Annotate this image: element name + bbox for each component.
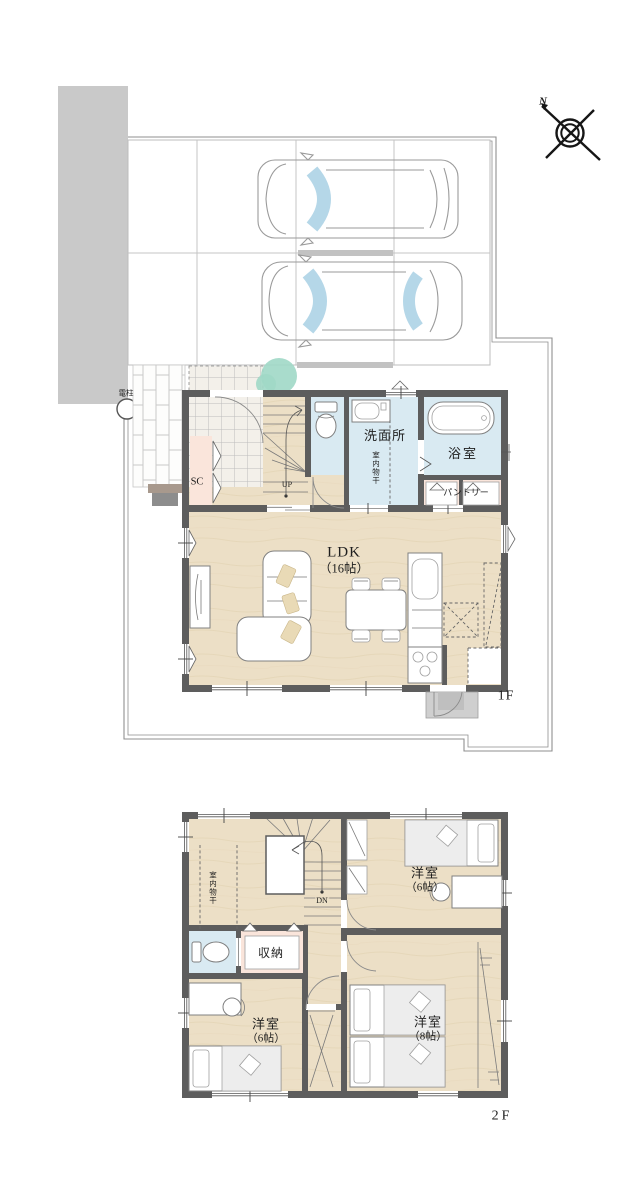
house-2f: [178, 808, 512, 1102]
room-label-ne: 洋室 （6帖）: [406, 866, 445, 895]
door-sw: [306, 1004, 336, 1010]
room-label-ldk: LDK （16帖）: [319, 544, 369, 577]
floorplan-drawing: [0, 0, 640, 1200]
wheel-stopper: [298, 250, 393, 256]
house-1f: [133, 358, 515, 718]
sofa-chaise: [237, 617, 311, 661]
door-ne: [341, 900, 347, 928]
sofa: [263, 551, 311, 625]
road-block: [58, 86, 128, 404]
toilet2-tank: [192, 942, 201, 962]
entrance-opening: [210, 390, 263, 397]
compass: [541, 103, 600, 160]
toilet-tank: [315, 402, 337, 412]
shoe-closet-floor: [190, 436, 212, 506]
drying-label-2f: 室内物干: [209, 871, 218, 905]
utility-pole-label: 電柱: [119, 389, 134, 398]
compass-north-label: N: [539, 95, 547, 108]
room-label-sw: 洋室 （6帖）: [247, 1017, 286, 1046]
room-ne-size: （6帖）: [406, 881, 445, 894]
room-label-storage: 収納: [258, 946, 284, 960]
hall-ldk-opening: [267, 505, 310, 512]
closet-ne: [347, 820, 367, 894]
dining-table: [346, 590, 406, 630]
bed-ne: [405, 820, 498, 866]
back-door-opening: [430, 685, 466, 692]
bed-sw: [189, 1046, 281, 1091]
toilet2-bowl: [203, 942, 229, 962]
room-label-se: 洋室 （8帖）: [409, 1015, 448, 1044]
ldk-window-right: [501, 525, 508, 553]
chair-sw: [223, 998, 241, 1016]
back-porch: [426, 692, 478, 718]
room-label-shoe-closet: SC: [191, 477, 204, 490]
room-sw-size: （6帖）: [247, 1032, 286, 1045]
drying-label-1f: 室内物干: [372, 451, 381, 485]
wheel-stopper: [297, 362, 393, 368]
desk-ne: [452, 876, 502, 908]
kitchen-sink: [412, 559, 438, 599]
ldk-size: （16帖）: [319, 562, 369, 577]
room-ne-name: 洋室: [406, 866, 445, 882]
room-se-size: （8帖）: [409, 1030, 448, 1043]
room-label-bathroom: 浴室: [448, 446, 478, 462]
bed-se-2: [350, 1037, 445, 1087]
door-se: [341, 941, 347, 972]
room-label-washroom: 洗面所: [364, 428, 406, 444]
ldk-name: LDK: [319, 544, 369, 562]
approach-path: [133, 365, 185, 487]
stair-void: [266, 836, 304, 894]
stove: [408, 647, 442, 683]
entrance-step: [152, 493, 178, 506]
floor2-tag: 2F: [492, 1109, 513, 1126]
floor1-tag: 1F: [498, 689, 515, 706]
stairs-up-label: UP: [282, 480, 292, 490]
floorplan-canvas: N 電柱 SC UP 洗面所 室内物干 浴室 パントリー LDK （16帖） 1…: [0, 0, 640, 1200]
room-sw-name: 洋室: [247, 1017, 286, 1033]
entrance-step: [148, 484, 182, 493]
room-label-pantry: パントリー: [443, 488, 488, 499]
room-se-name: 洋室: [409, 1015, 448, 1031]
stairs-down-label: DN: [315, 896, 329, 906]
tv-board: [190, 566, 210, 628]
